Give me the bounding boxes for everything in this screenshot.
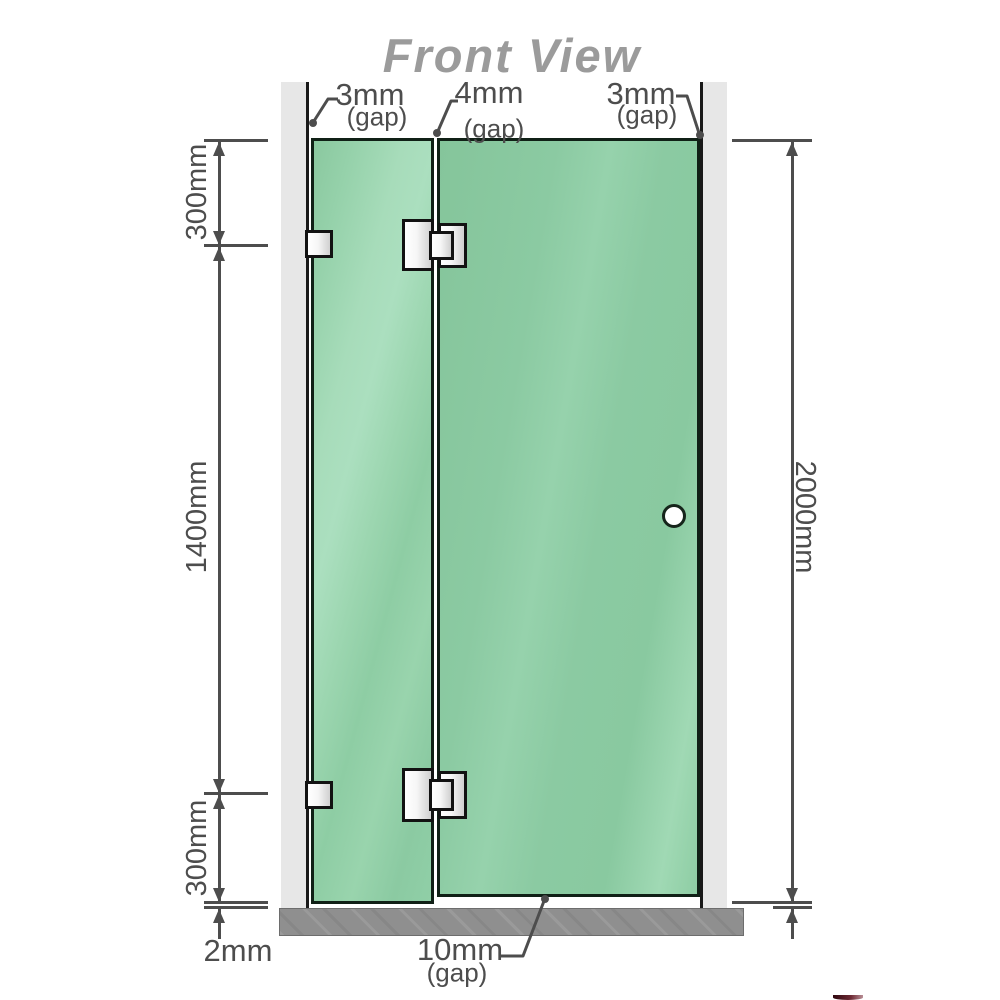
dim-line-1400 — [218, 247, 221, 792]
arrow-up-icon — [786, 909, 798, 923]
gap-label-left-unit: (gap) — [347, 102, 408, 133]
arrow-down-icon — [213, 779, 225, 793]
bottom-right-artifact — [833, 995, 863, 1000]
arrow-up-icon — [786, 142, 798, 156]
dim-tick-right-bottom — [732, 901, 812, 904]
dim-tick-right-top — [732, 139, 812, 142]
dim-label-300-bottom: 300mm — [181, 773, 213, 923]
dim-line-300-bottom — [218, 795, 221, 901]
arrow-down-icon — [213, 888, 225, 902]
dim-label-2000: 2000mm — [789, 442, 821, 592]
right-wall — [703, 82, 727, 908]
gap-label-bottom-unit: (gap) — [427, 958, 488, 989]
dim-label-300-top: 300mm — [181, 117, 213, 267]
arrow-down-icon — [786, 888, 798, 902]
leader-left-gap — [314, 99, 338, 121]
door-glass-panel — [437, 138, 700, 897]
arrow-up-icon — [213, 247, 225, 261]
arrow-up-icon — [213, 795, 225, 809]
base-sill — [279, 908, 744, 936]
door-knob-icon — [662, 504, 686, 528]
arrow-down-icon — [213, 231, 225, 245]
leader-dot-icon — [309, 119, 317, 127]
dim-label-1400: 1400mm — [181, 442, 213, 592]
gap-label-right-unit: (gap) — [617, 100, 678, 131]
front-view-diagram: Front View 300mm 1400mm 300mm 2mm 2000mm — [0, 0, 1000, 1000]
right-wall-edge-line — [700, 82, 703, 908]
dim-line-300-top — [218, 142, 221, 244]
top-hinge-knuckle-icon — [429, 231, 454, 260]
wall-bracket-bottom-icon — [305, 781, 333, 809]
arrow-up-icon — [213, 142, 225, 156]
arrow-up-icon — [213, 909, 225, 923]
leader-right-gap — [676, 96, 699, 133]
wall-bracket-top-icon — [305, 230, 333, 258]
gap-label-middle-value: 4mm — [455, 75, 524, 111]
leader-dot-icon — [433, 129, 441, 137]
bottom-hinge-knuckle-icon — [429, 779, 454, 811]
gap-label-middle-unit: (gap) — [464, 114, 525, 145]
dim-label-2mm: 2mm — [204, 933, 273, 969]
left-wall — [281, 82, 306, 908]
